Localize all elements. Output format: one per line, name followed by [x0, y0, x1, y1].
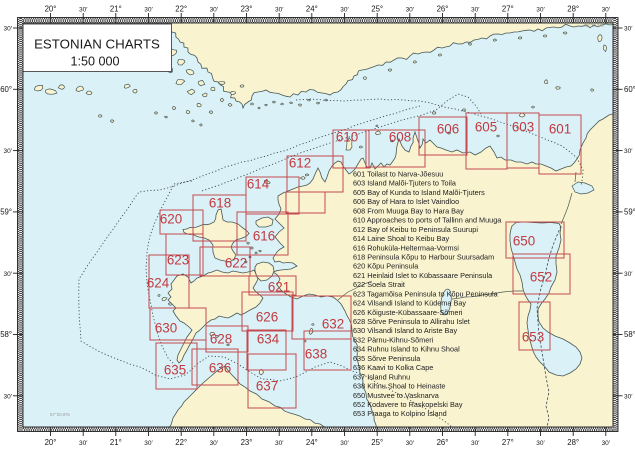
svg-text:632: 632: [322, 317, 344, 332]
svg-text:620 Kõpu Peninsula: 620 Kõpu Peninsula: [353, 262, 419, 271]
svg-text:24°: 24°: [306, 5, 318, 14]
svg-text:30′: 30′: [144, 7, 153, 14]
svg-text:630: 630: [155, 321, 177, 336]
svg-text:620: 620: [160, 212, 182, 227]
svg-text:628 Sõrve Peninsula to Allirah: 628 Sõrve Peninsula to Allirahu Islet: [353, 317, 470, 326]
svg-text:612: 612: [289, 156, 311, 171]
svg-text:30′: 30′: [624, 26, 633, 33]
svg-text:605: 605: [475, 120, 497, 135]
svg-text:27°: 27°: [502, 5, 514, 14]
svg-text:30′: 30′: [275, 7, 284, 14]
svg-text:650 Mustvee to Vasknarva: 650 Mustvee to Vasknarva: [353, 391, 440, 400]
svg-text:623 Tagamõisa Peninsula to Kõp: 623 Tagamõisa Peninsula to Kõpu Peninsul…: [353, 289, 499, 298]
svg-text:601 Toilast to Narva-Jõesuu: 601 Toilast to Narva-Jõesuu: [353, 170, 443, 179]
svg-text:626: 626: [256, 310, 278, 325]
svg-text:612 Bay of Keibu to Peninsula: 612 Bay of Keibu to Peninsula Suurupi: [353, 225, 478, 234]
svg-text:614 Laine Shoal to Keibu Bay: 614 Laine Shoal to Keibu Bay: [353, 234, 450, 243]
svg-text:624 Vilsandi Island to Küdema: 624 Vilsandi Island to Küdema Bay: [353, 299, 466, 308]
svg-text:622 Soela Strait: 622 Soela Strait: [353, 280, 405, 289]
svg-text:652: 652: [530, 270, 552, 285]
svg-text:30′: 30′: [536, 440, 545, 447]
svg-text:634: 634: [257, 332, 280, 347]
svg-text:616 Rohuküla-Heltermaa-Vormsi: 616 Rohuküla-Heltermaa-Vormsi: [353, 243, 459, 252]
svg-text:636 Kaavi to Kolka Cape: 636 Kaavi to Kolka Cape: [353, 363, 433, 372]
svg-text:603: 603: [512, 120, 534, 135]
svg-text:628: 628: [210, 332, 232, 347]
svg-text:601: 601: [549, 122, 571, 137]
svg-text:30′: 30′: [79, 7, 88, 14]
svg-text:621: 621: [268, 280, 290, 295]
svg-text:58°: 58°: [624, 330, 635, 339]
svg-text:608: 608: [389, 130, 411, 145]
svg-text:30′: 30′: [624, 271, 633, 278]
svg-text:610 Approaches to ports of Tal: 610 Approaches to ports of Tallinn and M…: [353, 216, 502, 225]
svg-text:58°: 58°: [0, 330, 12, 339]
svg-text:28°: 28°: [567, 5, 579, 14]
svg-text:623: 623: [167, 253, 189, 268]
svg-text:605 Bay of Kunda to Island Mal: 605 Bay of Kunda to Island Malõi-Tjuters: [353, 188, 485, 197]
svg-text:26°: 26°: [437, 5, 449, 14]
svg-text:26°: 26°: [437, 438, 449, 447]
svg-text:30′: 30′: [624, 393, 633, 400]
svg-text:30′: 30′: [4, 271, 13, 278]
svg-text:30′: 30′: [4, 26, 13, 33]
svg-text:603 Island Malõi-Tjuters to To: 603 Island Malõi-Tjuters to Toila: [353, 179, 457, 188]
svg-text:ESTONIAN CHARTS: ESTONIAN CHARTS: [34, 37, 160, 52]
svg-text:30′: 30′: [340, 440, 349, 447]
svg-text:30′: 30′: [602, 440, 611, 447]
svg-text:637 Island Ruhnu: 637 Island Ruhnu: [353, 372, 410, 381]
svg-text:28°: 28°: [567, 438, 579, 447]
svg-text:23°: 23°: [241, 5, 253, 14]
svg-text:22°: 22°: [175, 5, 187, 14]
svg-text:24°: 24°: [306, 438, 318, 447]
svg-text:621 Heinlaid Islet to Kübassaa: 621 Heinlaid Islet to Kübassaare Peninsu…: [353, 271, 493, 280]
svg-text:610: 610: [336, 130, 358, 145]
svg-text:653 Praaga to Kolpino Island: 653 Praaga to Kolpino Island: [353, 409, 447, 418]
svg-text:30′: 30′: [471, 440, 480, 447]
svg-text:20°: 20°: [45, 5, 57, 14]
svg-text:30′: 30′: [210, 440, 219, 447]
svg-text:635: 635: [164, 363, 186, 378]
svg-text:30′: 30′: [624, 148, 633, 155]
svg-text:622: 622: [225, 256, 247, 271]
svg-text:652 Kodavere to Raskopelski Ba: 652 Kodavere to Raskopelski Bay: [353, 400, 463, 409]
svg-text:616: 616: [253, 229, 275, 244]
svg-text:637: 637: [256, 379, 278, 394]
svg-text:23°: 23°: [241, 438, 253, 447]
svg-text:624: 624: [147, 276, 170, 291]
svg-text:21°: 21°: [110, 438, 122, 447]
svg-text:57°20,8′N: 57°20,8′N: [50, 412, 70, 417]
svg-text:60°: 60°: [0, 85, 12, 94]
svg-text:60°: 60°: [624, 85, 635, 94]
svg-text:606: 606: [437, 122, 459, 137]
svg-text:634 Ruhnu Island to Kihnu Shoa: 634 Ruhnu Island to Kihnu Shoal: [353, 345, 460, 354]
svg-text:650: 650: [513, 234, 535, 249]
svg-text:632 Pärnu-Kihnu-Sõmeri: 632 Pärnu-Kihnu-Sõmeri: [353, 336, 434, 345]
svg-text:653: 653: [522, 330, 544, 345]
svg-text:30′: 30′: [79, 440, 88, 447]
svg-text:614: 614: [247, 177, 270, 192]
svg-text:30′: 30′: [406, 440, 415, 447]
svg-text:635 Sõrve Peninsula: 635 Sõrve Peninsula: [353, 354, 421, 363]
svg-text:618: 618: [209, 196, 231, 211]
svg-text:30′: 30′: [536, 7, 545, 14]
svg-text:21°: 21°: [110, 5, 122, 14]
svg-text:608 From Muuga Bay to Hara Bay: 608 From Muuga Bay to Hara Bay: [353, 206, 464, 215]
svg-text:30′: 30′: [275, 440, 284, 447]
svg-text:638: 638: [305, 347, 327, 362]
svg-text:59°: 59°: [624, 208, 635, 217]
svg-text:59°: 59°: [0, 208, 12, 217]
svg-text:30′: 30′: [406, 7, 415, 14]
svg-text:30′: 30′: [144, 440, 153, 447]
svg-text:30′: 30′: [340, 7, 349, 14]
svg-text:25°: 25°: [371, 438, 383, 447]
svg-text:636: 636: [209, 361, 231, 376]
svg-text:27°: 27°: [502, 438, 514, 447]
svg-text:630 Vilsandi Island to Ariste: 630 Vilsandi Island to Ariste Bay: [353, 326, 457, 335]
svg-text:638 Kihnu Shoal to Heinaste: 638 Kihnu Shoal to Heinaste: [353, 382, 446, 391]
svg-text:30′: 30′: [4, 148, 13, 155]
svg-text:30′: 30′: [602, 7, 611, 14]
svg-text:618 Peninsula Kõpu to Harbour: 618 Peninsula Kõpu to Harbour Suursadam: [353, 253, 494, 262]
svg-text:22°: 22°: [175, 438, 187, 447]
svg-text:606 Bay of Hara to Islet Vaind: 606 Bay of Hara to Islet Vaindloo: [353, 197, 459, 206]
svg-text:30′: 30′: [4, 393, 13, 400]
svg-text:626 Kõiguste-Kübassaare-Sõmeri: 626 Kõiguste-Kübassaare-Sõmeri: [353, 308, 463, 317]
svg-text:25°: 25°: [371, 5, 383, 14]
svg-text:20°: 20°: [45, 438, 57, 447]
svg-text:30′: 30′: [210, 7, 219, 14]
svg-text:30′: 30′: [471, 7, 480, 14]
svg-text:60°22,7′N: 60°22,7′N: [584, 23, 604, 28]
svg-text:1:50 000: 1:50 000: [70, 55, 119, 69]
